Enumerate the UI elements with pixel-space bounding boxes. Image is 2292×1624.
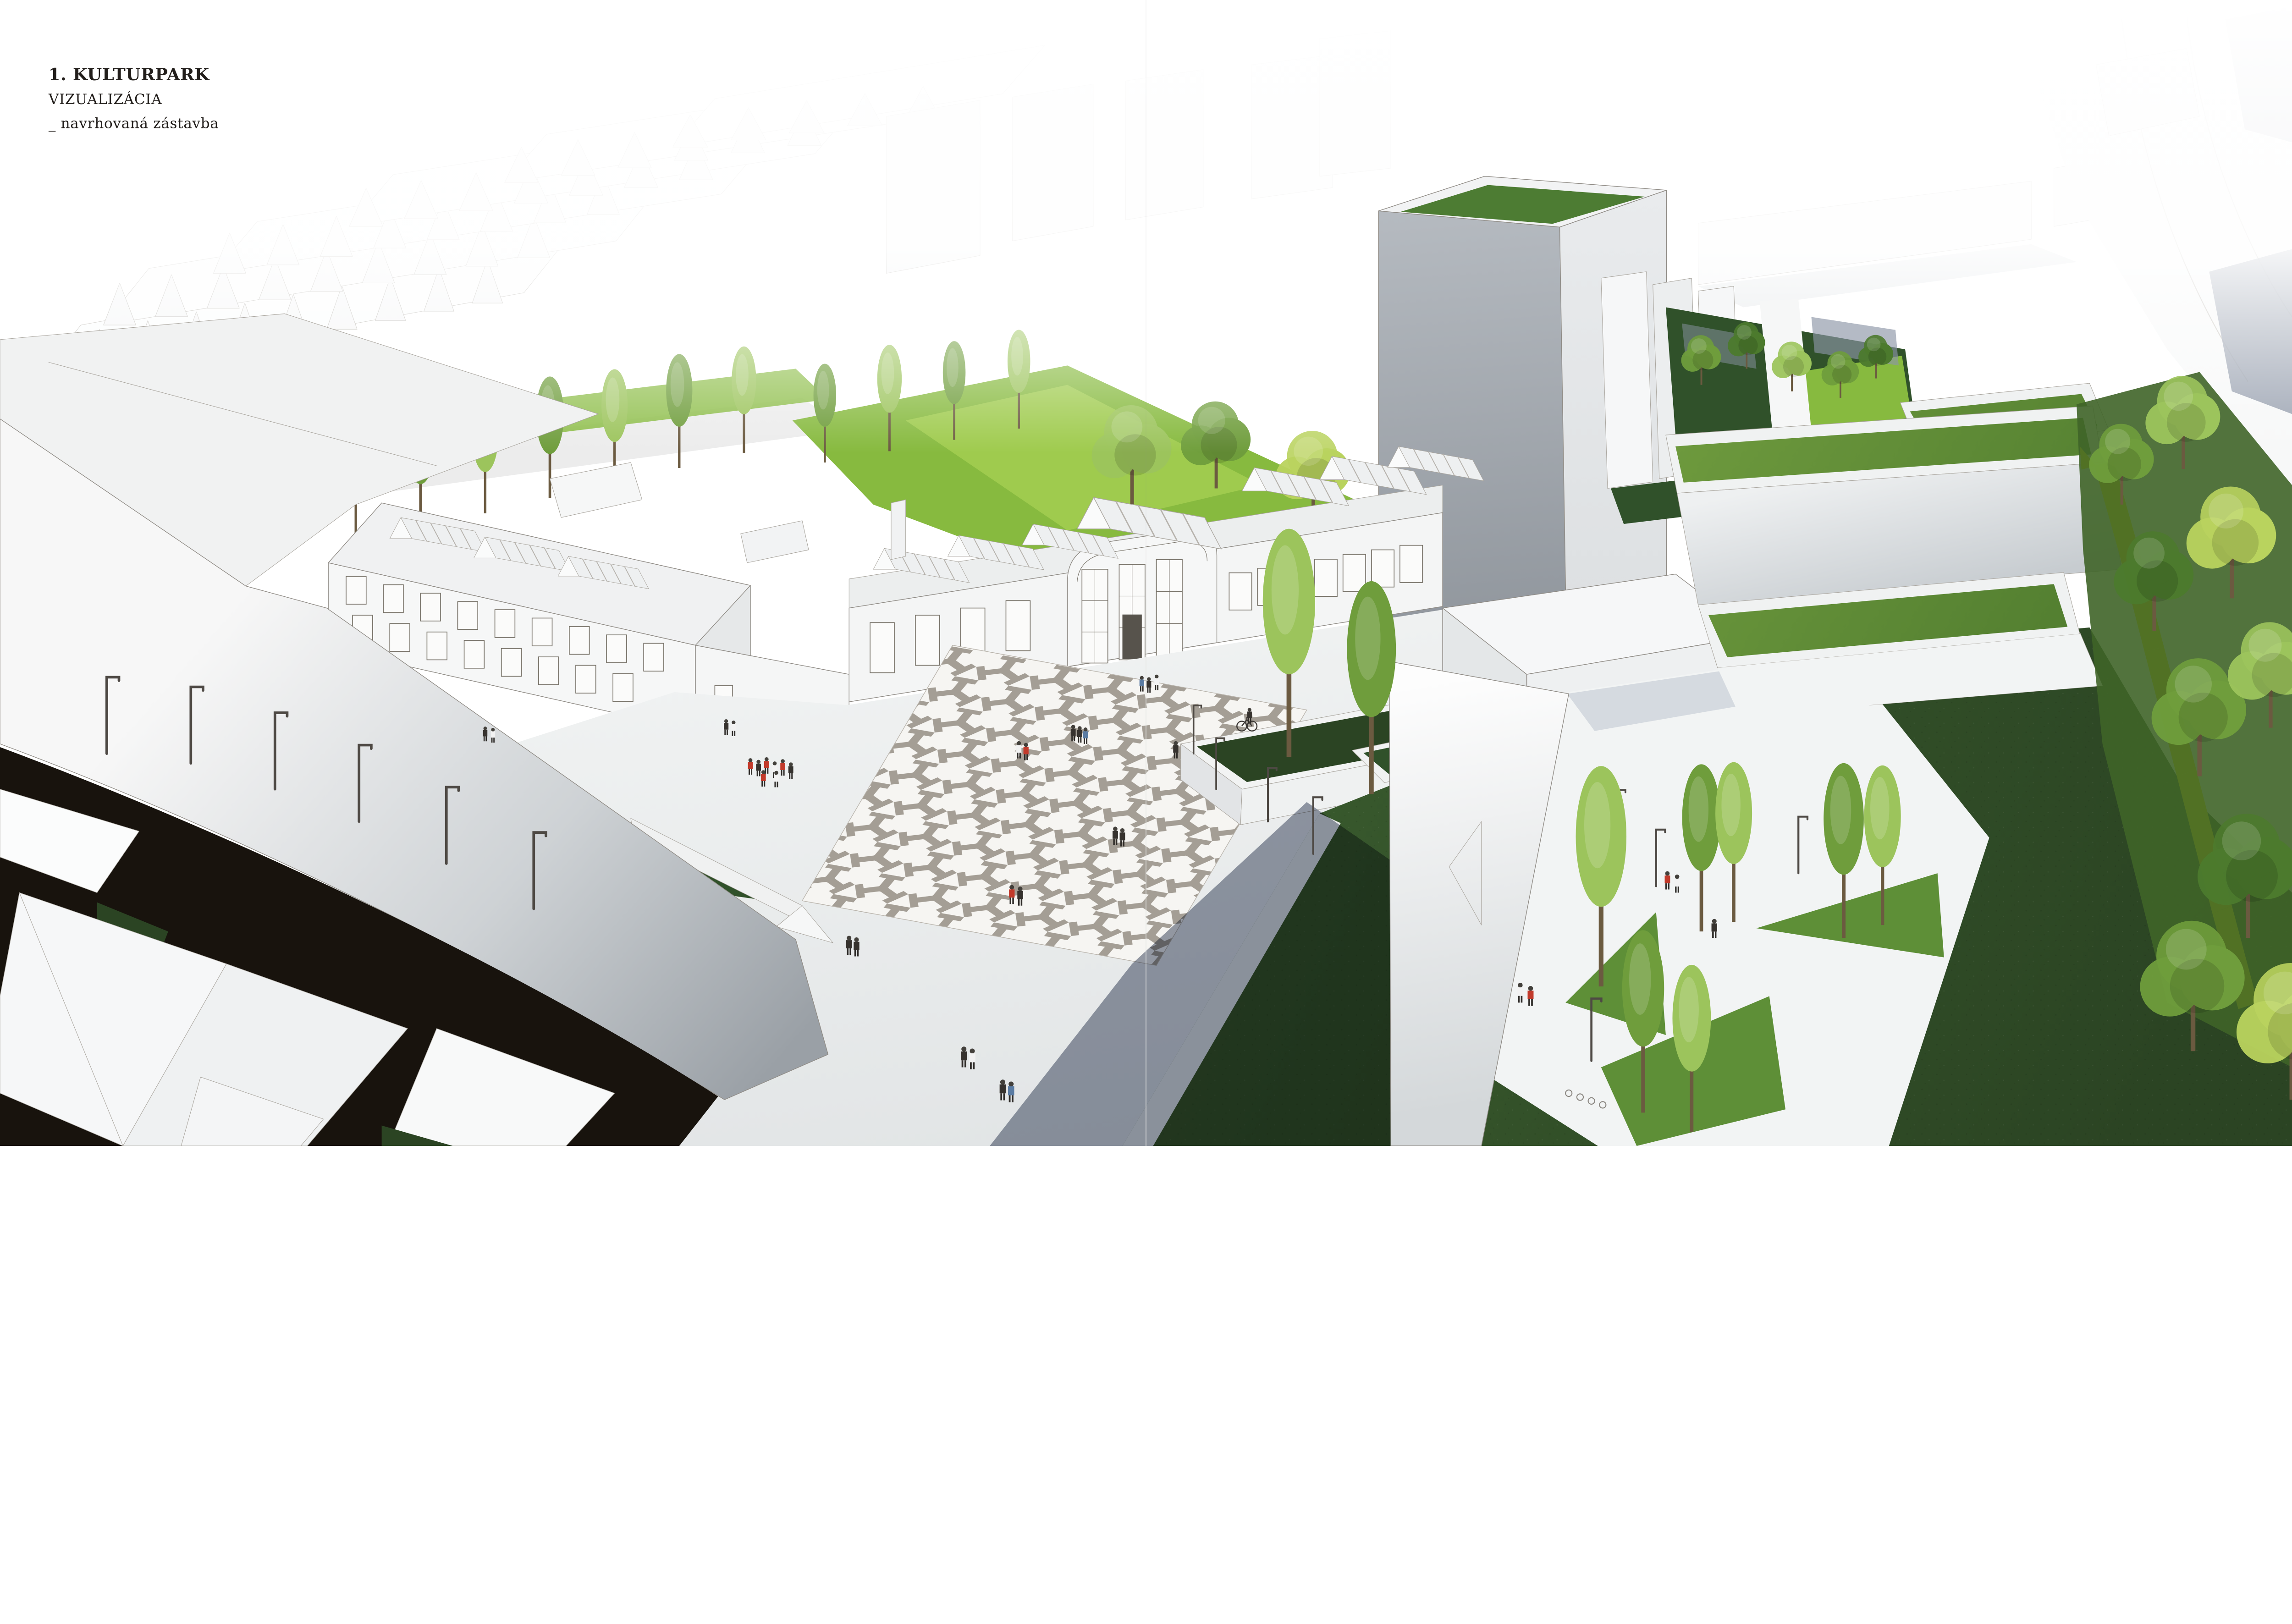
caption-line-2: VIZUALIZÁCIA [48,90,162,108]
chimney [891,500,906,560]
caption-line-3: _ navrhovaná zástavba [49,115,219,132]
hall-open-door [1122,615,1141,659]
page-title: 1. KULTURPARK [49,65,210,84]
slab-building [1601,272,1653,489]
visualization-canvas: 1. KULTURPARK VIZUALIZÁCIA _ navrhovaná … [0,0,2292,1146]
page: 1. KULTURPARK VIZUALIZÁCIA _ navrhovaná … [0,0,2292,1146]
